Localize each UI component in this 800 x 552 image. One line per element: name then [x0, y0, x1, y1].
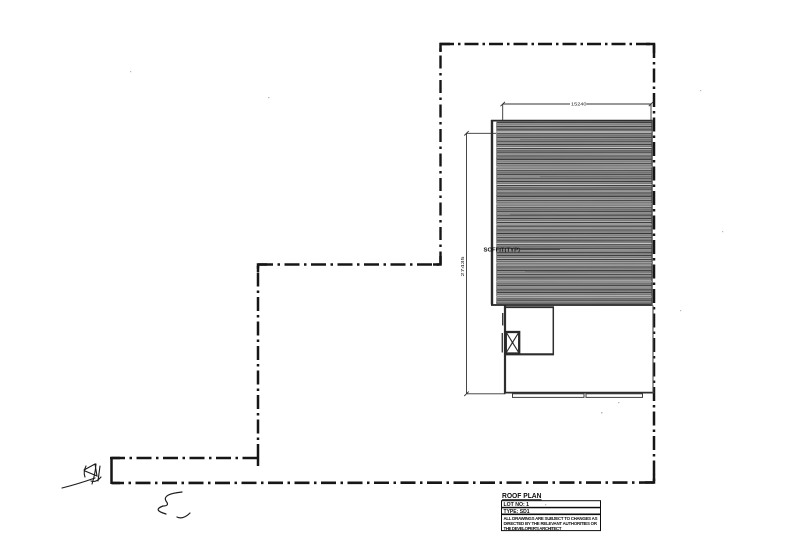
svg-text:LOT NO: 1: LOT NO: 1 [504, 502, 530, 508]
svg-text:SOFFIT(TYP): SOFFIT(TYP) [484, 248, 521, 254]
svg-text:15240: 15240 [571, 101, 587, 107]
svg-text:THE DEVELOPER'S ARCHITECT: THE DEVELOPER'S ARCHITECT [504, 526, 562, 531]
svg-text:27435: 27435 [460, 256, 466, 276]
svg-text:ROOF PLAN: ROOF PLAN [502, 491, 542, 500]
